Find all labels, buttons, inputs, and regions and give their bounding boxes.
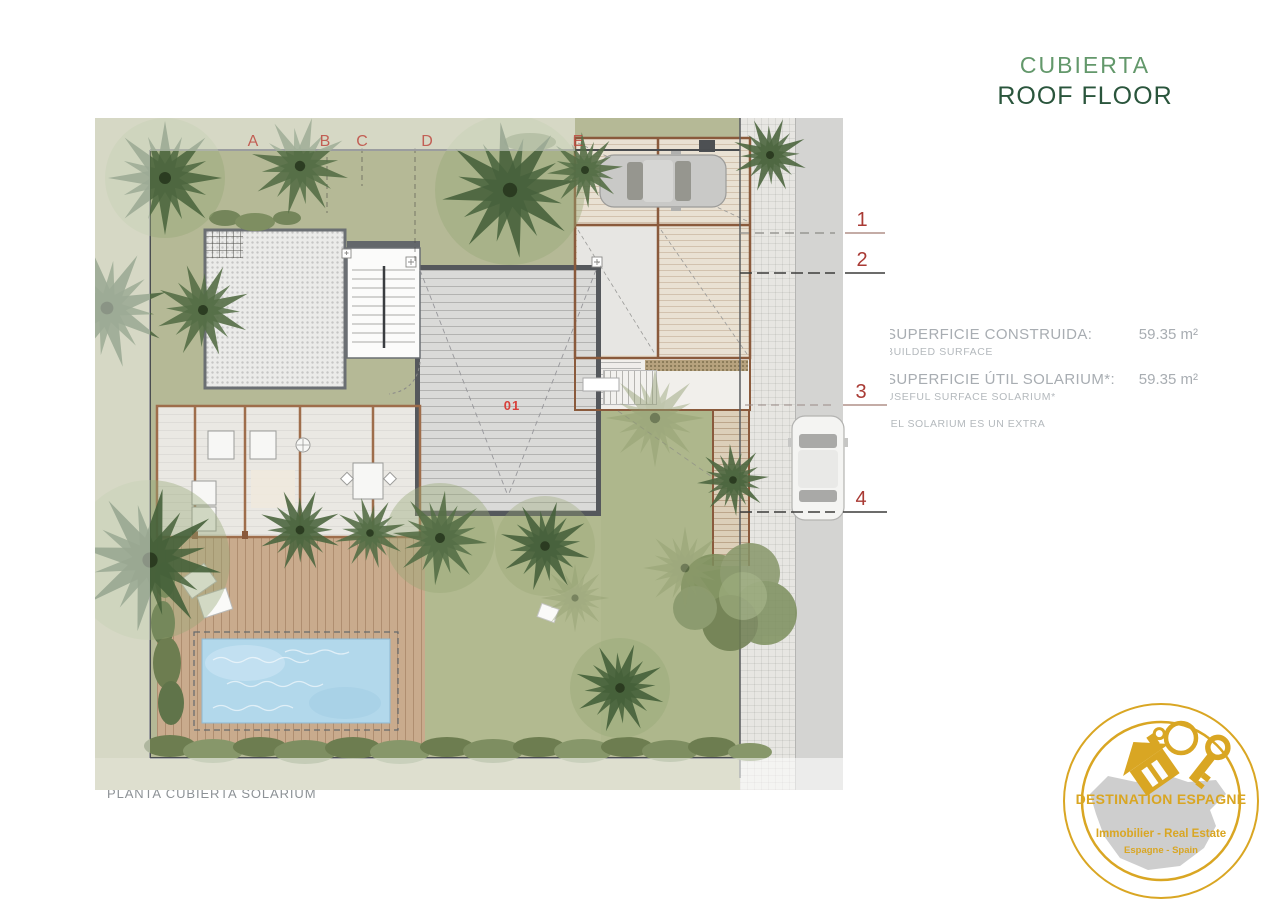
page-title: CUBIERTA ROOF FLOOR: [955, 52, 1215, 111]
roof-projection-lines: [420, 270, 596, 496]
title-spanish: CUBIERTA: [955, 52, 1215, 79]
swimming-pool: [194, 632, 398, 730]
logo-subtitle: Espagne - Spain: [1124, 845, 1198, 856]
grid-letter-c: C: [356, 133, 368, 150]
grid-letter-a: A: [248, 133, 259, 150]
plan-overlay: A B C D E 01 1 2 3: [95, 118, 890, 790]
built-surface-value: 59.35 m²: [1139, 326, 1198, 343]
logo-tagline: Immobilier - Real Estate: [1096, 828, 1226, 840]
parked-car-carport: [600, 151, 726, 211]
grid-number-3: 3: [855, 381, 866, 403]
grid-letter-e: E: [573, 133, 584, 150]
palm-canopy-shadows: [95, 118, 728, 738]
agency-logo: DESTINATION ESPAGNE Immobilier - Real Es…: [1058, 698, 1264, 904]
solarium-surface-label-en: USEFUL SURFACE SOLARIUM*: [886, 391, 1198, 403]
grid-number-2: 2: [856, 249, 867, 271]
title-english: ROOF FLOOR: [955, 82, 1215, 111]
logo-name: DESTINATION ESPAGNE: [1076, 791, 1247, 807]
grid-letter-b: B: [320, 133, 331, 150]
sun-loungers: [179, 563, 558, 622]
unit-label: 01: [504, 398, 520, 413]
grid-number-1: 1: [856, 209, 867, 231]
grid-letter-d: D: [421, 133, 433, 150]
grid-number-4: 4: [855, 488, 866, 510]
floor-plan-sheet: CUBIERTA ROOF FLOOR SUPERFICIE CONSTRUID…: [0, 0, 1286, 910]
solarium-surface-value: 59.35 m²: [1139, 371, 1198, 388]
site-plan: A B C D E 01 1 2 3: [95, 118, 890, 790]
solarium-surface-label-es: SUPERFICIE ÚTIL SOLARIUM*:: [886, 371, 1115, 388]
built-surface-label-en: BUILDED SURFACE: [886, 346, 1198, 358]
solarium-footnote: *EL SOLARIUM ES UN EXTRA: [886, 418, 1198, 430]
built-surface-label-es: SUPERFICIE CONSTRUIDA:: [886, 326, 1092, 343]
parked-car-road: [788, 416, 848, 520]
surface-measurements: SUPERFICIE CONSTRUIDA: 59.35 m² BUILDED …: [886, 326, 1198, 430]
